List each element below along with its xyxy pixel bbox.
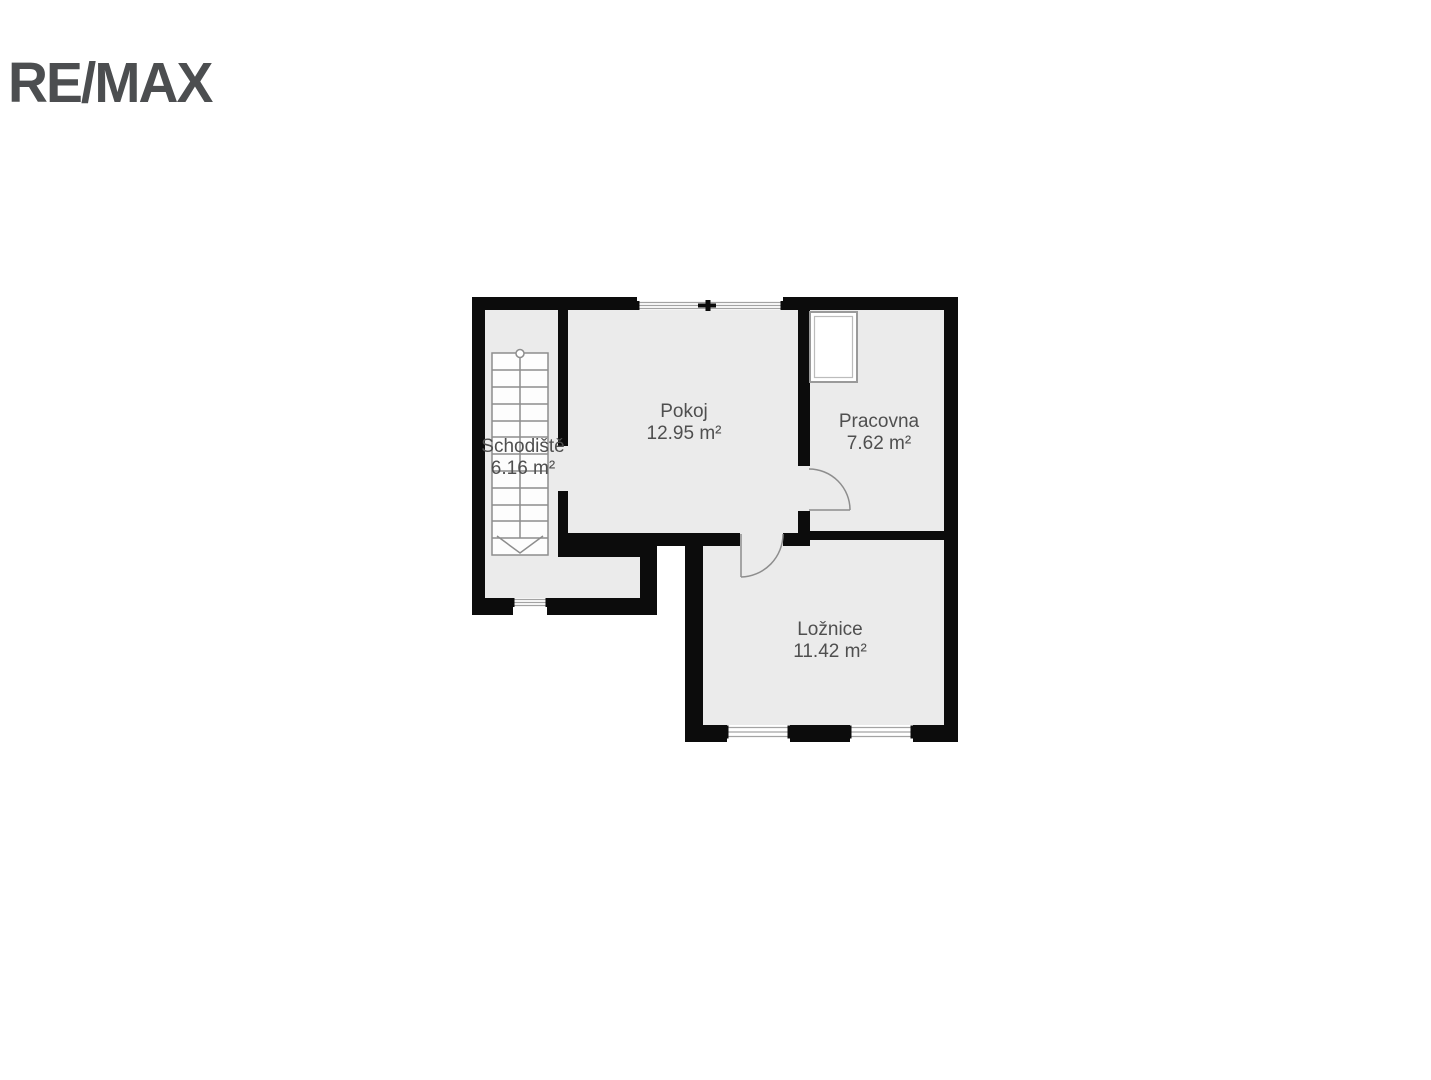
- window-schodiste-bottom: [512, 598, 549, 607]
- wall-pokoj-bottom-c: [783, 533, 810, 546]
- room-area: 11.42 m²: [793, 641, 867, 663]
- wall-pokoj-pracovna-lower: [798, 511, 810, 533]
- floorplan-page: RE/MAX: [0, 0, 1431, 1080]
- room-floors: [485, 310, 944, 725]
- wall-schodiste-pokoj-upper: [558, 310, 568, 446]
- window-end-tick: [546, 598, 549, 607]
- room-label-loznice: Ložnice 11.42 m²: [793, 619, 867, 663]
- wall-right: [944, 297, 958, 742]
- window-top-pokoj: [637, 300, 784, 311]
- room-area: 6.16 m²: [481, 458, 564, 480]
- floor-corridor: [558, 557, 640, 598]
- window-loznice-right: [849, 726, 914, 739]
- window-end-tick: [637, 301, 640, 310]
- wall-loznice-bottom-c: [913, 725, 958, 742]
- window-end-tick: [849, 726, 852, 739]
- window-loznice-left: [726, 726, 791, 739]
- room-name: Pokoj: [647, 401, 722, 423]
- room-area: 7.62 m²: [839, 433, 919, 455]
- wall-loznice-left: [685, 533, 703, 742]
- window-end-tick: [512, 598, 515, 607]
- wall-pokoj-pracovna-upper: [798, 310, 810, 466]
- door-opening-pokoj-pracovna: [798, 466, 810, 511]
- room-name: Ložnice: [793, 619, 867, 641]
- door-opening-pokoj-loznice: [740, 533, 783, 546]
- window-mid-tick: [706, 300, 711, 311]
- window-end-tick: [726, 726, 729, 739]
- wall-top-right: [783, 297, 958, 310]
- roof-window: [810, 312, 857, 382]
- room-area: 12.95 m²: [647, 423, 722, 445]
- stair-start-marker: [516, 350, 524, 358]
- room-name: Schodiště: [481, 436, 564, 458]
- wall-top-left: [472, 297, 637, 310]
- wall-loznice-bottom-b: [790, 725, 850, 742]
- window-end-tick: [788, 726, 791, 739]
- room-label-pracovna: Pracovna 7.62 m²: [839, 411, 919, 455]
- wall-loznice-bottom-a: [685, 725, 727, 742]
- wall-bottom-left-a: [472, 598, 513, 615]
- floor-plan-drawing: [0, 0, 1431, 1080]
- room-label-schodiste: Schodiště 6.16 m²: [481, 436, 564, 480]
- room-label-pokoj: Pokoj 12.95 m²: [647, 401, 722, 445]
- window-end-tick: [911, 726, 914, 739]
- window-end-tick: [781, 301, 784, 310]
- room-name: Pracovna: [839, 411, 919, 433]
- wall-pracovna-loznice: [810, 531, 944, 540]
- wall-pokoj-bottom-a: [558, 533, 657, 557]
